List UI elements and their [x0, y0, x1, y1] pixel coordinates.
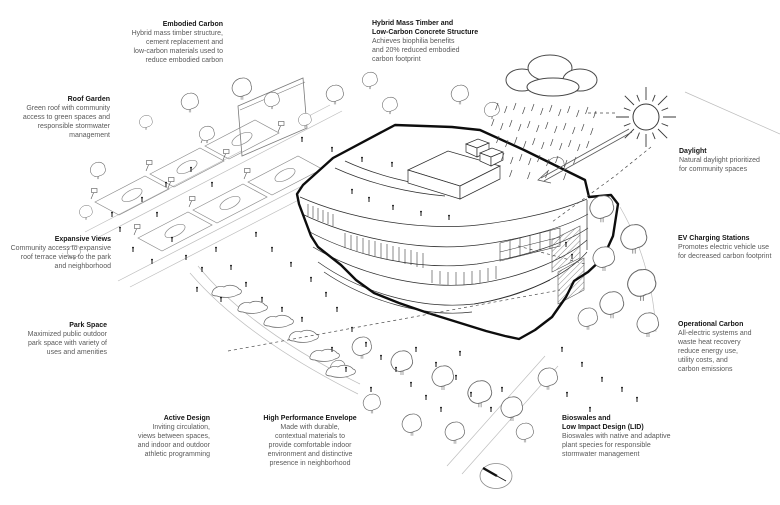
- annotation-title: Expansive Views: [0, 235, 111, 244]
- annotation-body: Achieves biophilia benefits and 20% redu…: [372, 37, 542, 64]
- annotation-ev-charging-stations: EV Charging Stations Promotes electric v…: [678, 234, 780, 261]
- annotation-body: Bioswales with native and adaptive plant…: [562, 432, 712, 459]
- annotation-park-space: Park Space Maximized public outdoor park…: [0, 321, 107, 357]
- annotation-high-performance-envelope: High Performance Envelope Made with dura…: [252, 414, 368, 468]
- annotation-title: Operational Carbon: [678, 320, 780, 329]
- annotation-body: Maximized public outdoor park space with…: [0, 330, 107, 357]
- building: [297, 125, 618, 339]
- annotation-title: Bioswales and Low Impact Design (LID): [562, 414, 712, 432]
- annotation-title: Embodied Carbon: [83, 20, 223, 29]
- annotation-active-design: Active Design Inviting circulation, view…: [85, 414, 210, 459]
- annotation-title: High Performance Envelope: [252, 414, 368, 423]
- annotation-title: Roof Garden: [0, 95, 110, 104]
- annotation-body: Community access to expansive roof terra…: [0, 244, 111, 271]
- annotation-body: Natural daylight prioritized for communi…: [679, 156, 779, 174]
- annotation-roof-garden: Roof Garden Green roof with community ac…: [0, 95, 110, 140]
- annotation-body: All-electric systems and waste heat reco…: [678, 329, 780, 374]
- annotation-title: Hybrid Mass Timber and Low-Carbon Concre…: [372, 19, 542, 37]
- annotation-body: Hybrid mass timber structure, cement rep…: [83, 29, 223, 65]
- annotation-body: Made with durable, contextual materials …: [252, 423, 368, 468]
- annotation-body: Promotes electric vehicle use for decrea…: [678, 243, 780, 261]
- sun-icon: [616, 87, 676, 147]
- annotation-daylight: Daylight Natural daylight prioritized fo…: [679, 147, 779, 174]
- annotation-title: Park Space: [0, 321, 107, 330]
- north-arrow-compass-icon: [480, 464, 512, 489]
- annotation-bioswales-lid: Bioswales and Low Impact Design (LID) Bi…: [562, 414, 712, 459]
- annotation-body: Inviting circulation, views between spac…: [85, 423, 210, 459]
- annotation-expansive-views: Expansive Views Community access to expa…: [0, 235, 111, 271]
- annotation-title: Active Design: [85, 414, 210, 423]
- annotation-title: Daylight: [679, 147, 779, 156]
- annotation-title: EV Charging Stations: [678, 234, 780, 243]
- annotation-body: Green roof with community access to gree…: [0, 104, 110, 140]
- annotation-embodied-carbon: Embodied Carbon Hybrid mass timber struc…: [83, 20, 223, 65]
- diagram-canvas: Embodied Carbon Hybrid mass timber struc…: [0, 0, 780, 505]
- annotation-hybrid-mass-timber: Hybrid Mass Timber and Low-Carbon Concre…: [372, 19, 542, 64]
- annotation-operational-carbon: Operational Carbon All-electric systems …: [678, 320, 780, 374]
